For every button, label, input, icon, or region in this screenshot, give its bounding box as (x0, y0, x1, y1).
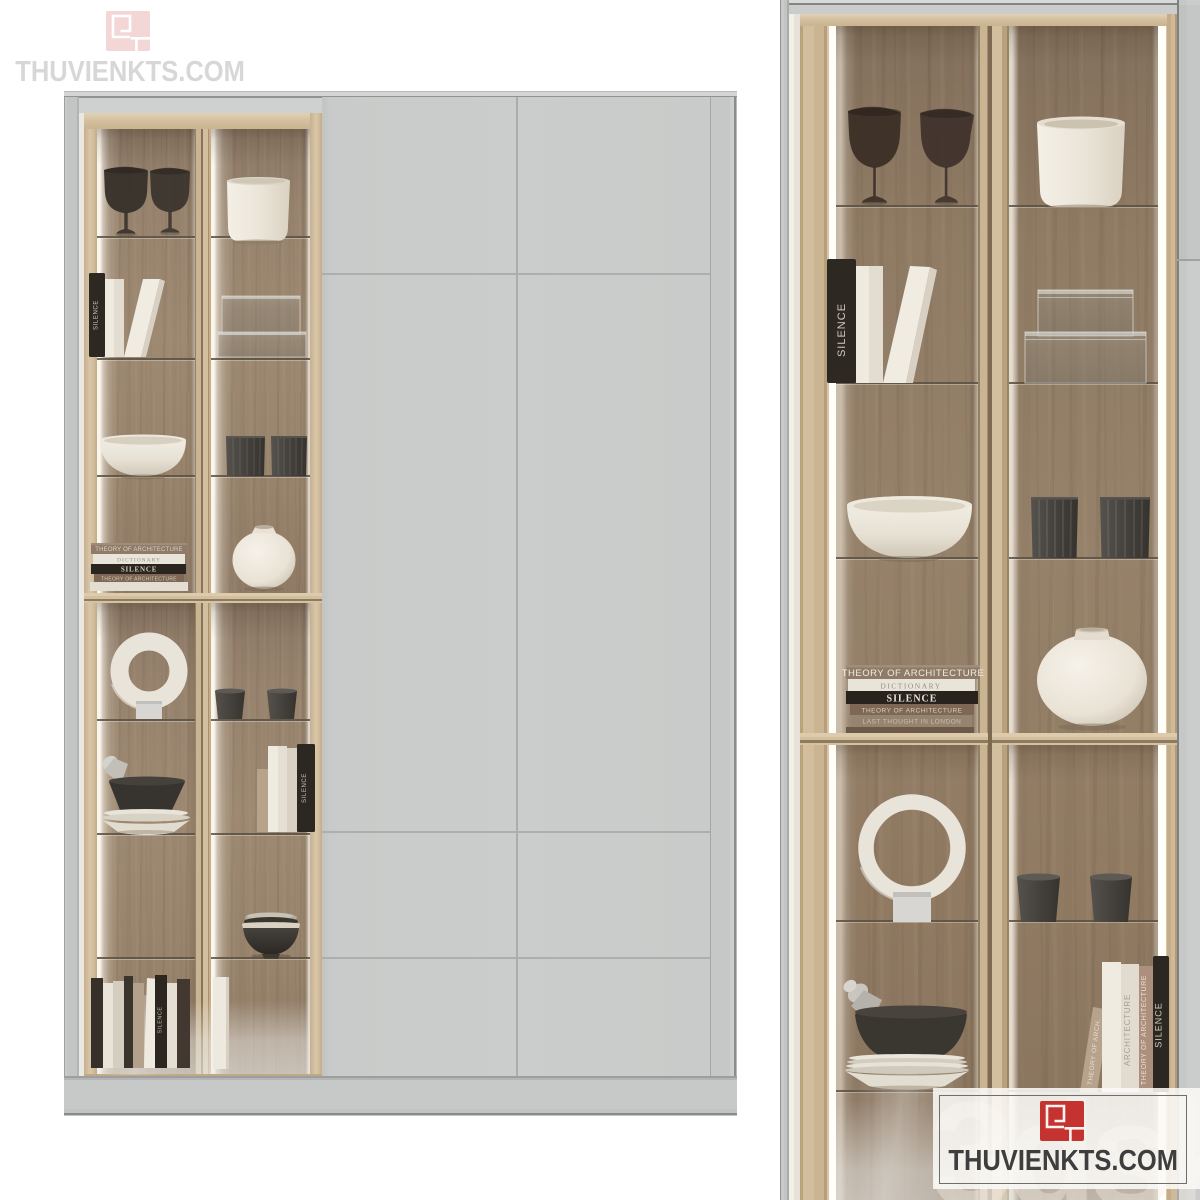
svg-text:ARCHITECTURE: ARCHITECTURE (1123, 994, 1132, 1066)
svg-text:SILENCE: SILENCE (836, 303, 848, 357)
svg-text:DICTIONARY: DICTIONARY (117, 558, 161, 564)
svg-text:DICTIONARY: DICTIONARY (880, 682, 941, 691)
svg-text:SILENCE: SILENCE (121, 566, 157, 574)
svg-text:THEORY OF ARCHITECTURE: THEORY OF ARCHITECTURE (842, 668, 985, 679)
svg-text:THEORY OF ARCHITECTURE: THEORY OF ARCHITECTURE (95, 547, 183, 553)
svg-text:SILENCE: SILENCE (94, 300, 100, 330)
svg-text:THEORY OF ARCHITECTURE: THEORY OF ARCHITECTURE (861, 708, 962, 715)
svg-text:SILENCE: SILENCE (302, 773, 308, 803)
svg-text:LAST THOUGHT IN LONDON: LAST THOUGHT IN LONDON (863, 719, 962, 726)
svg-text:SILENCE: SILENCE (158, 1006, 164, 1033)
svg-text:THEORY OF ARCHITECTURE: THEORY OF ARCHITECTURE (101, 577, 177, 583)
svg-text:THEORY OF ARCHITECTURE: THEORY OF ARCHITECTURE (1141, 975, 1148, 1085)
svg-text:SILENCE: SILENCE (887, 694, 938, 705)
svg-text:SILENCE: SILENCE (1154, 1002, 1164, 1048)
